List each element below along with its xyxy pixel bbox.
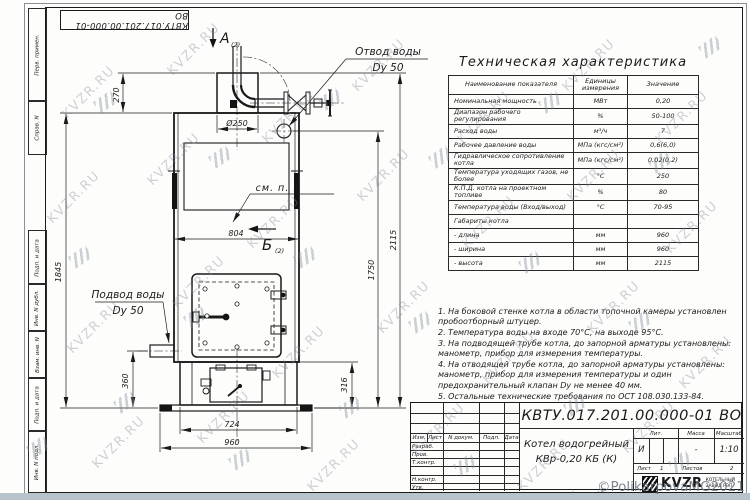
cell-value: 0,6(6,0) <box>628 138 699 152</box>
product-name-line1: Котел водогрейный <box>524 437 629 452</box>
tech-table-title: Техническая характеристика <box>448 55 698 70</box>
dim-804: 804 <box>228 229 243 238</box>
cell-value: 7 <box>628 124 699 138</box>
lit-value: И <box>634 445 649 455</box>
view-b-sub: (2) <box>275 247 284 255</box>
inlet-dn-label: Dy 50 <box>113 305 144 317</box>
cell-value <box>628 214 699 228</box>
dim-2115: 2115 <box>389 230 398 250</box>
table-row: Габариты котла <box>449 214 699 228</box>
cell-name: - высота <box>449 256 574 270</box>
cell-units: МПа (кгс/см²) <box>574 152 628 168</box>
row-razrab: Разраб. <box>412 444 443 450</box>
view-a-sub: (2) <box>231 41 240 49</box>
title-block: КВТУ.017.201.00.000-01 ВО Котел водогрей… <box>410 402 742 490</box>
signature-grid: Изм. Лист N докум. Подп. Дата Разраб. Пр… <box>411 403 519 491</box>
table-row: - высотамм2115 <box>449 256 699 270</box>
table-row: Температура уходящих газов, не более°С25… <box>449 168 699 184</box>
sheet-label: Лист <box>637 466 657 472</box>
dimension-lines <box>60 73 406 452</box>
cell-name: Рабочее давление воды <box>449 138 574 152</box>
hdr-izm: Изм. <box>411 435 427 441</box>
inlet-label: Подвод воды <box>92 289 165 301</box>
cell-value: 0,02(0,2) <box>628 152 699 168</box>
product-name-line2: КВр-0,20 КБ (К) <box>536 452 617 467</box>
row-nkontr: Н.контр. <box>412 477 443 483</box>
hdr-list: Лист <box>427 435 443 441</box>
table-header-row: Наименование показателя Единицы измерени… <box>449 76 699 95</box>
cell-units: % <box>574 184 628 200</box>
note-3: 3. На подводящей трубе котла, до запорно… <box>438 339 736 359</box>
lit-label: Лит. <box>634 431 678 437</box>
cell-units <box>574 214 628 228</box>
cell-units: % <box>574 109 628 125</box>
sheets-label: Листов <box>682 466 708 472</box>
cell-name: - длина <box>449 228 574 242</box>
cell-name: Габариты котла <box>449 214 574 228</box>
cell-name: Гидравлическое сопротивление котла <box>449 152 574 168</box>
cell-units: МВт <box>574 95 628 109</box>
copyright-watermark: ©PolikarpovaMG2021 <box>597 479 745 495</box>
table-row: Рабочее давление водыМПа (кгс/см²)0,6(6,… <box>449 138 699 152</box>
note-5: 5. Остальные технические требования по О… <box>438 392 736 402</box>
cell-name: - ширина <box>449 242 574 256</box>
table-row: К.П.Д. котла на проектном топливе%80 <box>449 184 699 200</box>
cell-name: Температура уходящих газов, не более <box>449 168 574 184</box>
row-tkontr: Т.контр. <box>412 460 443 466</box>
dim-250: Ø250 <box>225 118 248 128</box>
dim-270: 270 <box>112 87 121 102</box>
cell-units: м³/ч <box>574 124 628 138</box>
dim-360: 360 <box>121 373 130 388</box>
row-prov: Пров. <box>412 452 443 458</box>
hdr-podp: Подп. <box>479 435 504 441</box>
table-row: - длинамм960 <box>449 228 699 242</box>
cell-units: мм <box>574 242 628 256</box>
drawing-sheet: Перв. примен. Справ. N Подп. и дата Инв.… <box>0 0 750 500</box>
dim-960: 960 <box>224 438 239 447</box>
table-row: - ширинамм960 <box>449 242 699 256</box>
cell-name: К.П.Д. котла на проектном топливе <box>449 184 574 200</box>
cell-value: 250 <box>628 168 699 184</box>
hdr-data: Дата <box>504 435 519 441</box>
cell-units: °С <box>574 200 628 214</box>
see-note-label: см. п. 1 <box>256 183 301 194</box>
table-row: Номинальная мощностьМВт0,20 <box>449 95 699 109</box>
cell-name: Номинальная мощность <box>449 95 574 109</box>
technical-notes: 1. На боковой стенке котла в области топ… <box>438 307 736 403</box>
cell-value: 960 <box>628 228 699 242</box>
col-header-value: Значение <box>628 76 699 95</box>
sheets-value: 2 <box>730 466 742 472</box>
dim-1845: 1845 <box>54 262 63 282</box>
note-4: 4. На отводящей трубе котла, до запорной… <box>438 360 736 390</box>
black-details <box>160 100 331 411</box>
doc-number: КВТУ.017.201.00.000-01 ВО <box>519 403 743 429</box>
dim-724: 724 <box>224 420 239 429</box>
cell-units: мм <box>574 228 628 242</box>
dim-1750: 1750 <box>367 260 376 280</box>
cell-name: Расход воды <box>449 124 574 138</box>
scale-label: Масштаб <box>714 431 744 437</box>
col-header-name: Наименование показателя <box>449 76 574 95</box>
table-row: Расход водым³/ч7 <box>449 124 699 138</box>
cell-value: 70-95 <box>628 200 699 214</box>
table-row: Температура воды (Вход/выход)°С70-95 <box>449 200 699 214</box>
sheet-value: 1 <box>660 466 672 472</box>
note-1: 1. На боковой стенке котла в области топ… <box>438 307 736 327</box>
scale-value: 1:10 <box>714 445 744 455</box>
mass-label: Масса <box>678 431 714 437</box>
tech-table: Наименование показателя Единицы измерени… <box>448 75 699 271</box>
cell-value: 50-100 <box>628 109 699 125</box>
table-row: Гидравлическое сопротивление котлаМПа (к… <box>449 152 699 168</box>
view-b-label: Б <box>262 236 272 254</box>
outlet-label: Отвод воды <box>355 46 421 58</box>
cell-name: Температура воды (Вход/выход) <box>449 200 574 214</box>
cell-units: мм <box>574 256 628 270</box>
note-2: 2. Температура воды на входе 70°С, на вы… <box>438 328 736 338</box>
view-a-label: А <box>219 31 230 47</box>
cell-value: 2115 <box>628 256 699 270</box>
view-markers <box>210 28 277 233</box>
cell-units: МПа (кгс/см²) <box>574 138 628 152</box>
col-header-units: Единицы измерения <box>574 76 628 95</box>
mass-value: - <box>678 445 714 455</box>
cell-value: 0,20 <box>628 95 699 109</box>
cell-value: 960 <box>628 242 699 256</box>
row-utv: Утв. <box>412 485 443 491</box>
cell-units: °С <box>574 168 628 184</box>
table-row: Диапазон рабочего регулирования%50-100 <box>449 109 699 125</box>
cell-name: Диапазон рабочего регулирования <box>449 109 574 125</box>
outlet-dn-label: Dy 50 <box>373 62 404 74</box>
dim-316: 316 <box>340 377 349 392</box>
hdr-ndokum: N докум. <box>443 435 479 441</box>
cell-value: 80 <box>628 184 699 200</box>
